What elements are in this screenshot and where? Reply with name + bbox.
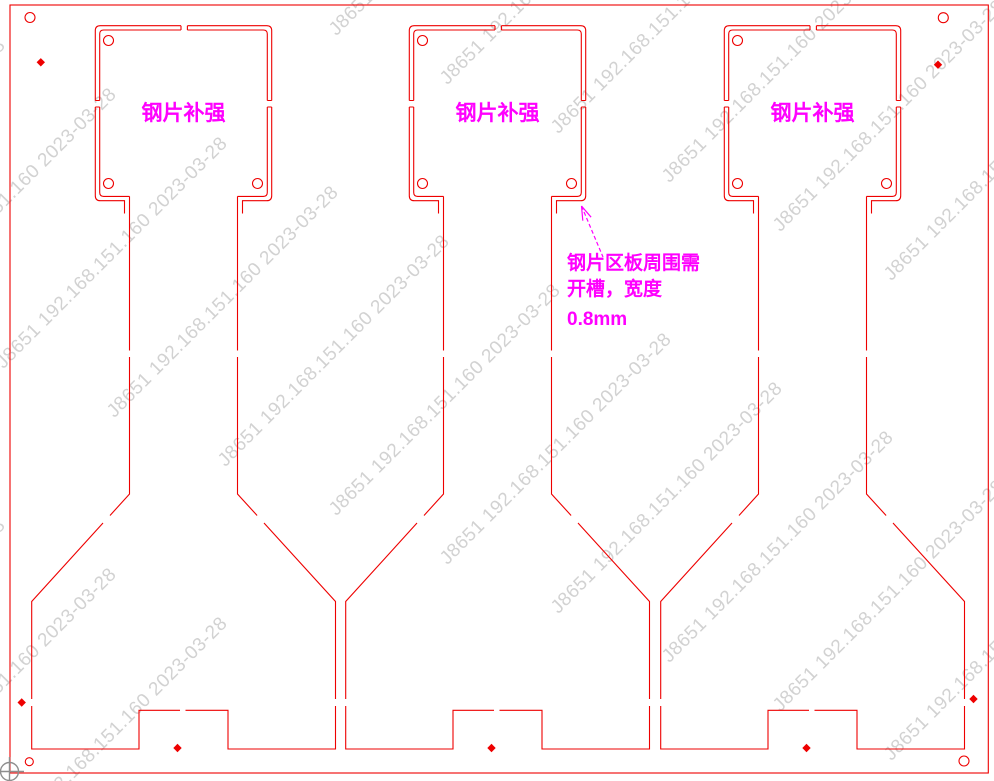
corner-diamond-bottom-left [18,698,26,706]
slot-note-line-2: 开槽，宽度 [567,277,700,303]
cad-panel-drawing: J8651 192.168.151.160 2023-03-28J8651 19… [0,0,994,781]
stiffener-label-3: 钢片补强 [728,97,898,127]
corner-diamond-top-left [37,58,45,66]
corner-diamond-top-right [934,61,942,69]
slot-note-line-1: 钢片区板周围需 [567,251,700,277]
corner-diamond-bottom-right [969,695,977,703]
note-arrow [582,206,604,257]
stiffener-label-1: 钢片补强 [99,97,269,127]
stiffener-label-2: 钢片补强 [413,97,583,127]
board-unit-3 [661,26,965,753]
board-unit-2 [346,26,650,753]
board-unit-1 [32,26,336,753]
slot-note: 钢片区板周围需 开槽，宽度 0.8mm [567,251,700,333]
panel-hole-bottom-right [959,756,969,766]
panel-hole-top-right [938,13,948,23]
panel-hole-bottom-left [25,758,33,766]
panel-hole-top-left [25,13,35,23]
origin-marker [0,757,24,781]
slot-note-line-3: 0.8mm [567,307,700,333]
